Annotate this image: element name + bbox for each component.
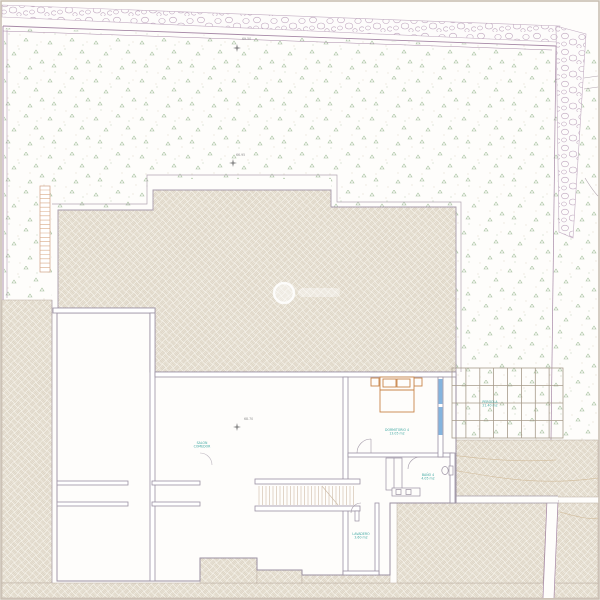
svg-text:21.40 m2: 21.40 m2: [482, 404, 497, 408]
room-label-pergola: PERGOLA 21.40 m2: [482, 400, 498, 408]
svg-text:69.50: 69.50: [242, 37, 251, 41]
room-label-bano: BAÑO 4 4.05 m2: [421, 472, 434, 481]
svg-text:3.60 m2: 3.60 m2: [354, 536, 367, 540]
svg-text:66.95: 66.95: [236, 153, 245, 157]
plan-page: 69.50 66.95 68.70 SALON COMEDOR DORMITOR…: [0, 0, 600, 600]
elevation-text-mid: 66.95: [236, 153, 245, 157]
svg-text:COMEDOR: COMEDOR: [194, 445, 211, 449]
window-tick: [439, 404, 443, 407]
svg-text:68.70: 68.70: [244, 417, 253, 421]
room-label-lavadero: LAVADERO 3.60 m2: [352, 532, 370, 540]
svg-text:13.05 m2: 13.05 m2: [389, 432, 404, 436]
exterior-stair-ladder: [40, 186, 50, 272]
svg-text:4.05 m2: 4.05 m2: [421, 477, 434, 481]
elevation-text-top: 69.50: [242, 37, 251, 41]
elevation-text-salon: 68.70: [244, 417, 253, 421]
site-plan-canvas: 69.50 66.95 68.70 SALON COMEDOR DORMITOR…: [0, 0, 600, 600]
